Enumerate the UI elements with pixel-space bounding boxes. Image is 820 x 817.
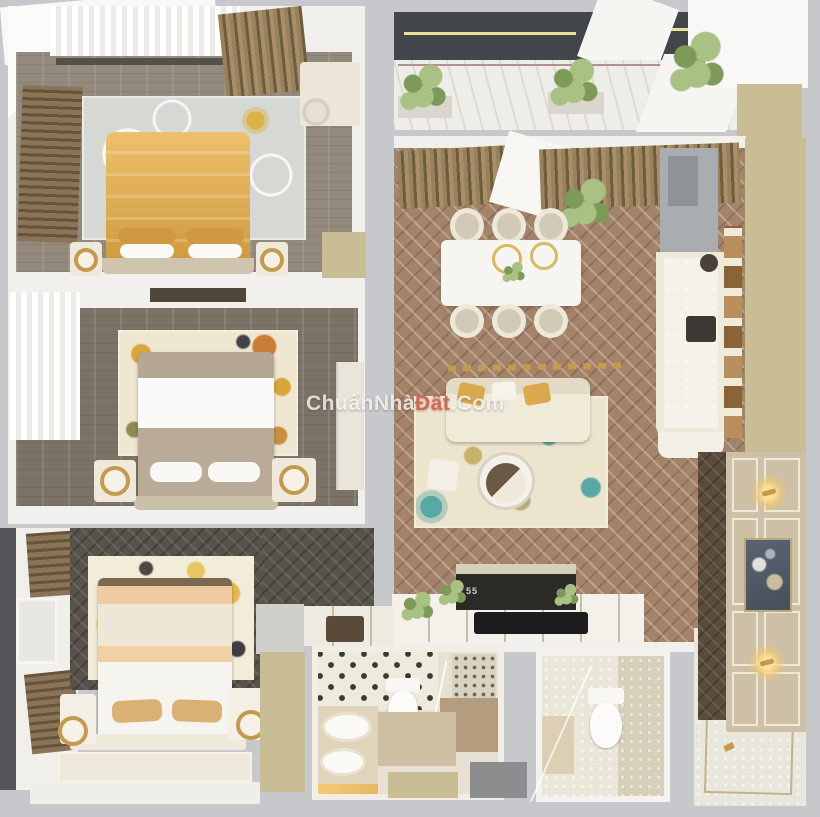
bed-pillow-white [120, 244, 174, 258]
wardrobe-block [737, 84, 802, 141]
bed-sheet-white [138, 378, 274, 428]
side-wall-tan [745, 138, 806, 454]
white-curtain [10, 292, 80, 440]
bed-pillow-white [188, 244, 242, 258]
bed-pillow-white [208, 462, 260, 482]
bedroom3-wall-bottom [30, 782, 260, 804]
bed-pillow-white [150, 462, 202, 482]
bed-pillow-gold [111, 699, 162, 724]
table-lamp [100, 466, 130, 496]
watermark-part4: .Com [450, 392, 505, 415]
bed-pillow-gold [186, 228, 244, 244]
dining-chair [534, 208, 568, 244]
dining-chair [534, 304, 568, 338]
watermark: ChuẩnNhàĐất.Com [306, 392, 505, 416]
kitchen-sink [686, 316, 716, 342]
bed-bench [70, 734, 246, 750]
kitchen-shelving [724, 226, 742, 438]
induction-cooktop [474, 612, 588, 634]
floor-plan-render: 55 [0, 0, 820, 817]
bathroom2-marble-wall [618, 656, 664, 796]
coffee-table-tray [486, 463, 526, 503]
dresser-tray [326, 616, 364, 642]
kitchen-countertop [664, 258, 718, 428]
counter-plant [398, 592, 438, 626]
deck-light-strip [404, 32, 576, 35]
vanity-basin [322, 712, 372, 742]
tv-top-edge [456, 564, 576, 574]
bed-headboard [134, 496, 278, 510]
bathroom1-tile-floor [318, 652, 438, 710]
watermark-part2: Nhà [374, 392, 415, 415]
foot-rug [58, 752, 252, 782]
wall-panel [732, 672, 758, 726]
balcony-plant [546, 58, 604, 116]
bedroom-1 [8, 6, 365, 282]
window-track [56, 58, 224, 65]
toilet-bowl [590, 702, 622, 748]
bedroom-3 [0, 524, 305, 808]
wall-artwork [744, 538, 792, 612]
counter-plant [436, 580, 470, 610]
dining-chair [492, 304, 526, 338]
counter-gray [256, 604, 304, 654]
exterior-dark-strip [0, 528, 16, 790]
bedroom2-door [336, 362, 364, 490]
table-centerpiece [500, 262, 528, 286]
bedroom3-window [16, 598, 58, 664]
dining-chair [492, 208, 526, 244]
desk-chair [302, 98, 330, 126]
vanity-underglow [318, 784, 378, 794]
table-lamp [279, 465, 309, 495]
watermark-part3: Đất [415, 392, 450, 415]
table-wreath [530, 242, 558, 270]
bed-pillow-gold [118, 228, 176, 244]
ceiling-vent [150, 288, 246, 302]
bed-foot-rail [98, 578, 232, 586]
entry-wood-strip [698, 452, 726, 720]
bed-pillow-gold [172, 699, 223, 723]
table-lamp [58, 716, 88, 746]
bed-foot-blanket [138, 352, 274, 378]
sheer-curtain [50, 6, 240, 56]
watermark-part1: Chuẩn [306, 392, 374, 415]
vanity-basin [320, 748, 366, 776]
table-lamp [74, 248, 98, 272]
dining-chair [450, 304, 484, 338]
drape-curtain [218, 6, 310, 98]
dining-chair [450, 208, 484, 244]
bathroom1-door [388, 772, 458, 798]
bed-band-peach [98, 646, 232, 662]
fridge-door [668, 156, 698, 206]
bed-band-cream [98, 604, 232, 646]
balcony-plant [666, 30, 730, 106]
balcony-plant [396, 64, 452, 120]
shower-mosaic-wall [452, 654, 496, 700]
wardrobe [322, 232, 366, 278]
table-lamp [260, 248, 284, 272]
side-table [426, 458, 460, 492]
bed-headboard [102, 258, 254, 274]
bathroom1-floor-beige [378, 712, 456, 766]
floor-mat [470, 762, 527, 798]
coffee-machine [700, 254, 718, 272]
counter-plant [552, 584, 582, 610]
window-blinds [17, 85, 82, 243]
bed-band-peach [98, 586, 232, 604]
wardrobe [260, 652, 305, 792]
